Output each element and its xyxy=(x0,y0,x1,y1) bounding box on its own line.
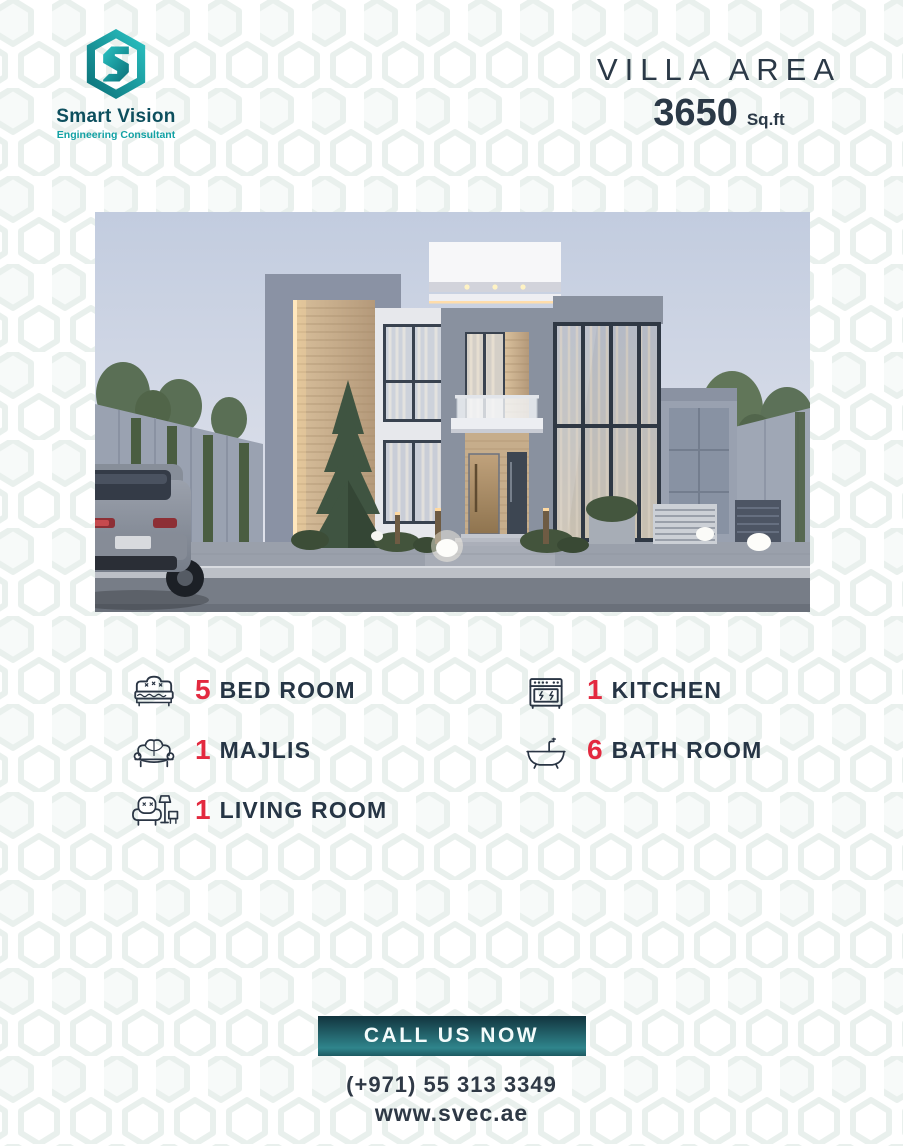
phone-number[interactable]: (+971) 55 313 3349 xyxy=(0,1072,903,1098)
feature-bathroom: 6 BATH ROOM xyxy=(520,727,840,773)
bed-icon xyxy=(128,667,180,713)
feature-count: 5 xyxy=(195,674,211,706)
feature-label: BATH ROOM xyxy=(612,737,763,764)
feature-label: MAJLIS xyxy=(220,737,312,764)
feature-label: KITCHEN xyxy=(612,677,723,704)
sofa-icon xyxy=(128,727,180,773)
smart-vision-logo-icon xyxy=(36,24,196,104)
stove-icon xyxy=(520,667,572,713)
villa-area-value: 3650 xyxy=(653,92,738,134)
feature-label: BED ROOM xyxy=(220,677,356,704)
villa-area-label: VILLA AREA xyxy=(597,52,841,88)
balcony xyxy=(451,395,543,433)
website-url[interactable]: www.svec.ae xyxy=(0,1100,903,1127)
armchair-icon xyxy=(128,787,180,833)
feature-livingroom: 1 LIVING ROOM xyxy=(128,787,520,833)
villa-illustration xyxy=(95,212,810,612)
flyer-page: Smart Vision Engineering Consultant VILL… xyxy=(0,0,903,1146)
feature-count: 1 xyxy=(195,734,211,766)
villa-area-block: VILLA AREA 3650Sq.ft xyxy=(597,52,841,135)
feature-bedroom: 5 BED ROOM xyxy=(128,667,520,713)
feature-majlis: 1 MAJLIS xyxy=(128,727,520,773)
villa-photo xyxy=(95,212,810,612)
feature-count: 6 xyxy=(587,734,603,766)
villa-area-value-row: 3650Sq.ft xyxy=(597,92,841,135)
brand-tagline: Engineering Consultant xyxy=(36,129,196,141)
brand-name: Smart Vision xyxy=(36,106,196,128)
feature-count: 1 xyxy=(195,794,211,826)
villa-area-unit: Sq.ft xyxy=(747,110,785,129)
feature-kitchen: 1 KITCHEN xyxy=(520,667,840,713)
call-us-now-button[interactable]: CALL US NOW xyxy=(318,1016,586,1056)
feature-count: 1 xyxy=(587,674,603,706)
feature-label: LIVING ROOM xyxy=(220,797,388,824)
bathtub-icon xyxy=(520,727,572,773)
features-list: 5 BED ROOM 1 KITCHEN xyxy=(128,660,840,840)
brand-logo-block: Smart Vision Engineering Consultant xyxy=(36,24,196,141)
